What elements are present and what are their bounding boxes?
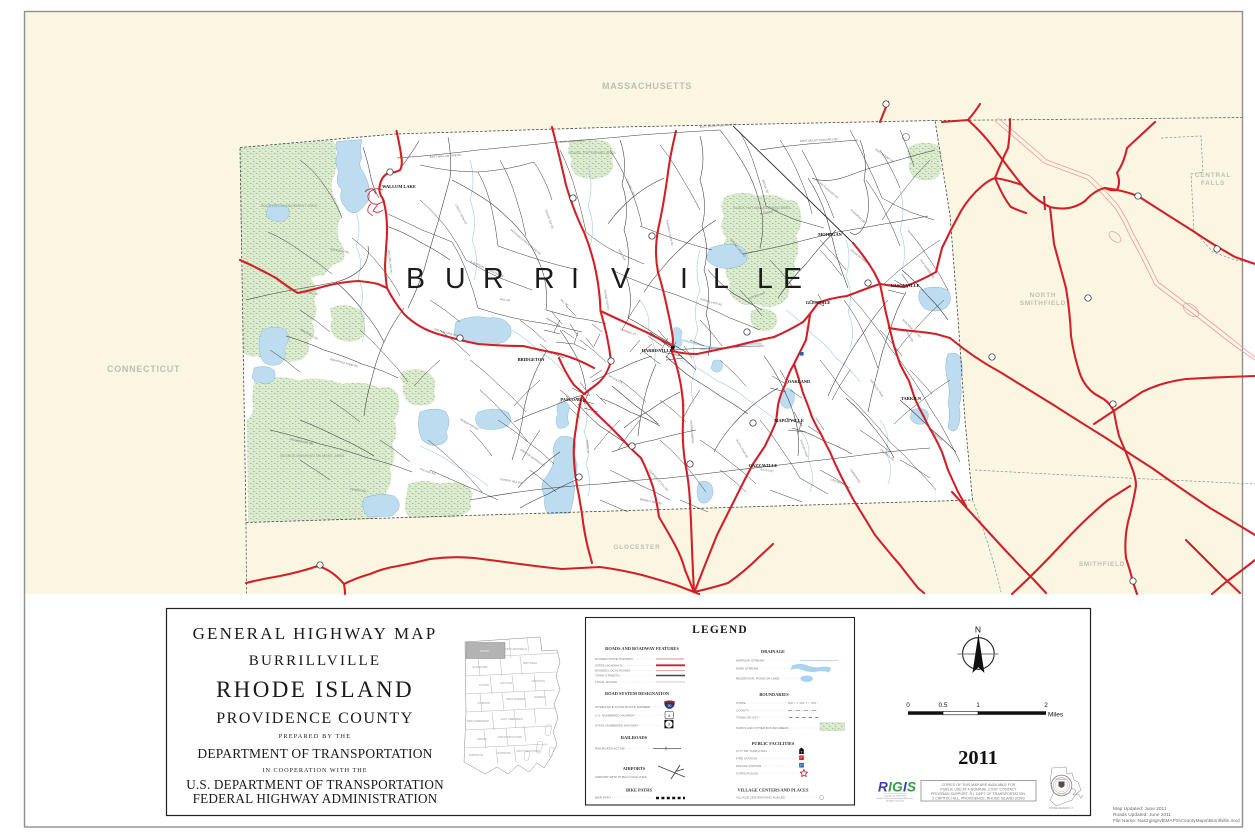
svg-text:GEORGE WASHINGTON MGMT. AREA: GEORGE WASHINGTON MGMT. AREA	[280, 454, 345, 458]
svg-text:BOUNDARIES: BOUNDARIES	[759, 692, 789, 697]
svg-text:B: B	[406, 263, 425, 295]
svg-text:BIKE PATHS: BIKE PATHS	[626, 788, 653, 793]
svg-text:VILLAGE CENTERS AND PLACES: VILLAGE CENTERS AND PLACES	[736, 796, 785, 800]
svg-text:FIRE STATION: FIRE STATION	[736, 757, 757, 761]
svg-text:T: T	[801, 750, 803, 754]
svg-text:AIRPORTS: AIRPORTS	[623, 766, 646, 771]
svg-text:R: R	[483, 263, 504, 295]
svg-text:GLOCESTER: GLOCESTER	[614, 544, 661, 551]
svg-text:GENERAL HIGHWAY MAP: GENERAL HIGHWAY MAP	[193, 624, 438, 643]
svg-text:V: V	[611, 263, 630, 295]
svg-text:HOPKINTON: HOPKINTON	[469, 754, 483, 757]
svg-text:OAKLAND: OAKLAND	[788, 379, 810, 384]
svg-text:AIRPORT WITH PUBLIC FACILITIES: AIRPORT WITH PUBLIC FACILITIES	[595, 775, 647, 779]
svg-text:WALLUM LAKE: WALLUM LAKE	[382, 184, 416, 189]
svg-text:NORTH SMITHFIELD: NORTH SMITHFIELD	[503, 648, 527, 651]
svg-text:File Name: Nas2gisgrv$\MAPS\Co: File Name: Nas2gisgrv$\MAPS\CountyMaps\B…	[1113, 818, 1240, 824]
svg-text:All Rights Reserved: All Rights Reserved	[886, 800, 904, 803]
svg-text:TARKILN: TARKILN	[901, 396, 922, 401]
svg-text:IN COOPERATION WITH THE: IN COOPERATION WITH THE	[262, 767, 367, 774]
svg-text:SMITHFIELD: SMITHFIELD	[1020, 300, 1066, 307]
svg-text:HARRISVILLE: HARRISVILLE	[642, 348, 673, 353]
svg-text:90: 90	[668, 704, 672, 708]
svg-text:RHODE ISLAND: RHODE ISLAND	[216, 677, 414, 702]
svg-text:2011: 2011	[958, 747, 998, 769]
svg-text:RESERVOIR, POND OR LAKE: RESERVOIR, POND OR LAKE	[736, 677, 779, 681]
svg-text:RHODE ISLAND: RHODE ISLAND	[1055, 793, 1069, 796]
svg-text:DEPARTMENT OF TRANSPORTATION: DEPARTMENT OF TRANSPORTATION	[197, 746, 432, 761]
svg-text:FEDERAL HIGHWAY ADMINISTRATION: FEDERAL HIGHWAY ADMINISTRATION	[193, 791, 438, 806]
svg-text:STATE NUMBERED HIGHWAY: STATE NUMBERED HIGHWAY	[595, 724, 638, 728]
svg-text:ROAD SYSTEM DESIGNATION: ROAD SYSTEM DESIGNATION	[605, 691, 670, 696]
svg-text:U.S. NUMBERED HIGHWAY: U.S. NUMBERED HIGHWAY	[595, 714, 635, 718]
svg-text:PROGRAM SUPPORT, R.I. DEPT OF: PROGRAM SUPPORT, R.I. DEPT OF TRANSPORTA…	[931, 792, 1026, 796]
svg-text:RAILROADS: RAILROADS	[621, 735, 648, 740]
svg-text:COPIES OF THIS MAP ARE AVAILAB: COPIES OF THIS MAP ARE AVAILABLE FOR	[942, 783, 1016, 787]
svg-text:WEST GREENWICH: WEST GREENWICH	[467, 720, 490, 723]
svg-text:WIDE STREAM: WIDE STREAM	[736, 667, 758, 671]
svg-text:RIGIS: RIGIS	[878, 780, 916, 795]
svg-text:FOSTER: FOSTER	[479, 684, 489, 687]
svg-text:BURR.: BURR.	[480, 649, 490, 653]
svg-text:U: U	[445, 263, 466, 295]
svg-text:TOWN STREETS: TOWN STREETS	[595, 674, 620, 678]
svg-text:PASCOAG: PASCOAG	[560, 397, 582, 402]
svg-text:FALLS: FALLS	[1201, 180, 1225, 187]
svg-text:STATE HIGHWAYS: STATE HIGHWAYS	[595, 664, 622, 668]
svg-text:CENTRAL: CENTRAL	[1195, 172, 1231, 179]
svg-text:2: 2	[1044, 702, 1048, 709]
svg-text:GLOCESTER: GLOCESTER	[473, 666, 488, 669]
svg-text:U.S. DEPARTMENT OF TRANSPORTAT: U.S. DEPARTMENT OF TRANSPORTATION	[186, 777, 444, 792]
svg-text:DIVIDED STATE HIGHWAY: DIVIDED STATE HIGHWAY	[595, 657, 633, 661]
svg-text:SCITUATE: SCITUATE	[500, 682, 512, 685]
svg-text:NASONVILLE: NASONVILLE	[890, 283, 919, 288]
svg-text:I: I	[680, 263, 688, 295]
svg-text:CONNECTICUT: CONNECTICUT	[107, 364, 180, 374]
svg-text:F: F	[800, 756, 802, 760]
svg-text:ROUND TOP FISHING AREA: ROUND TOP FISHING AREA	[568, 151, 616, 155]
svg-text:SMITHFIELD: SMITHFIELD	[1079, 561, 1125, 568]
svg-text:STATE: STATE	[736, 701, 746, 705]
svg-text:COVENTRY: COVENTRY	[477, 702, 491, 705]
svg-text:RICHMOND: RICHMOND	[497, 752, 510, 755]
svg-text:MAPLEVILLE: MAPLEVILLE	[774, 418, 804, 423]
svg-text:CRANSTON: CRANSTON	[531, 680, 545, 683]
svg-text:MASSACHUSETTS: MASSACHUSETTS	[602, 81, 692, 91]
svg-text:BLACK HUT MANAGEMENT AREA: BLACK HUT MANAGEMENT AREA	[733, 206, 791, 210]
svg-text:NORTH KINGSTOWN: NORTH KINGSTOWN	[498, 736, 522, 739]
svg-text:NORTH: NORTH	[1030, 292, 1057, 299]
svg-text:DRAINAGE: DRAINAGE	[761, 649, 785, 654]
svg-text:I: I	[571, 263, 579, 295]
svg-text:ROADS AND ROADWAY FEATURES: ROADS AND ROADWAY FEATURES	[605, 646, 679, 651]
svg-text:BRIDGETON: BRIDGETON	[518, 357, 546, 362]
svg-text:RHODE ISLAND D.O.T.: RHODE ISLAND D.O.T.	[1049, 807, 1074, 810]
svg-text:PUBLIC USE AT A NOMINAL COST.: PUBLIC USE AT A NOMINAL COST. CONTACT	[940, 788, 1017, 792]
svg-text:GLENDALE: GLENDALE	[806, 300, 831, 305]
svg-text:WARWICK: WARWICK	[534, 696, 546, 699]
svg-text:GAZZAVILLE: GAZZAVILLE	[749, 463, 778, 468]
svg-text:Miles: Miles	[1048, 712, 1064, 719]
svg-text:PREPARED BY THE: PREPARED BY THE	[279, 733, 351, 740]
svg-text:EXETER: EXETER	[477, 738, 487, 741]
svg-text:R: R	[534, 263, 555, 295]
svg-text:Map Updated: June 2011: Map Updated: June 2011	[1113, 806, 1167, 812]
svg-text:VILLAGE CENTERS AND PLACES: VILLAGE CENTERS AND PLACES	[738, 788, 809, 793]
svg-text:0: 0	[906, 702, 910, 709]
svg-text:EAST GREENWICH: EAST GREENWICH	[501, 718, 523, 721]
svg-text:PROVIDENCE COUNTY: PROVIDENCE COUNTY	[216, 710, 414, 727]
svg-text:LEGEND: LEGEND	[692, 624, 748, 636]
svg-text:N: N	[975, 625, 981, 635]
svg-text:CITY OR TOWN HALL: CITY OR TOWN HALL	[736, 749, 768, 753]
svg-text:BUCK HILL MANAGEMENT AREA: BUCK HILL MANAGEMENT AREA	[261, 204, 317, 208]
svg-text:E: E	[783, 263, 802, 295]
svg-text:2 CAPITOL HILL, PROVIDENCE, RH: 2 CAPITOL HILL, PROVIDENCE, RHODE ISLAND…	[932, 797, 1024, 801]
svg-text:1: 1	[976, 702, 980, 709]
svg-text:L: L	[713, 263, 729, 295]
svg-text:BIKE PATH: BIKE PATH	[595, 796, 611, 800]
svg-text:PUBLIC FACILITIES: PUBLIC FACILITIES	[752, 741, 795, 746]
svg-text:MOHEGAN: MOHEGAN	[818, 232, 842, 237]
svg-text:BURRILLVILLE: BURRILLVILLE	[249, 653, 382, 669]
svg-text:SMITHFIELD: SMITHFIELD	[523, 662, 537, 665]
svg-text:SOUTH KINGSTOWN: SOUTH KINGSTOWN	[516, 750, 540, 753]
svg-text:L: L	[757, 263, 773, 295]
svg-text:TRANSPORTATION: TRANSPORTATION	[1053, 778, 1070, 781]
svg-text:WEST WARWICK: WEST WARWICK	[506, 698, 526, 701]
svg-text:0.5: 0.5	[938, 702, 947, 709]
svg-text:Roads Updated: June 2011: Roads Updated: June 2011	[1113, 812, 1171, 818]
